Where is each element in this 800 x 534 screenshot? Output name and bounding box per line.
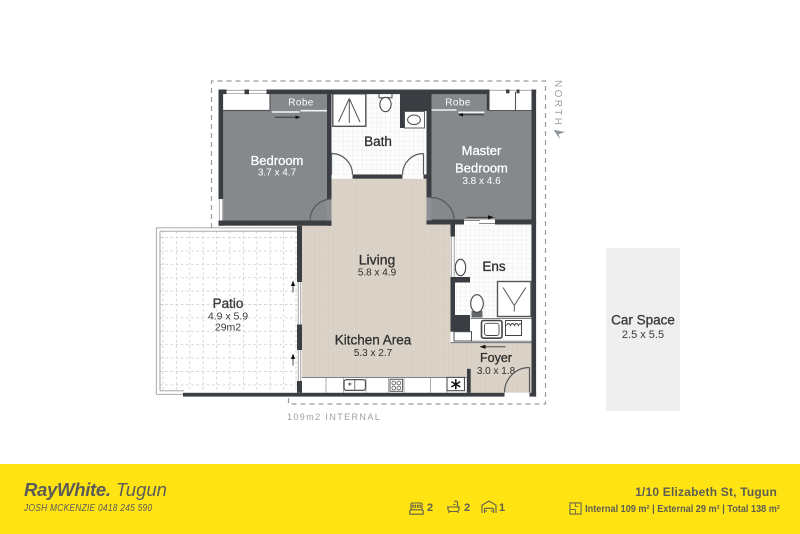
svg-text:29m2: 29m2 <box>215 322 241 334</box>
svg-text:NORTH: NORTH <box>552 80 563 127</box>
svg-text:5.8 x 4.9: 5.8 x 4.9 <box>358 268 397 279</box>
svg-text:Foyer: Foyer <box>480 351 512 365</box>
svg-text:2.5 x 5.5: 2.5 x 5.5 <box>622 329 664 341</box>
svg-text:3.7 x 4.7: 3.7 x 4.7 <box>258 168 297 179</box>
svg-text:Car Space: Car Space <box>611 313 675 328</box>
svg-text:Kitchen Area: Kitchen Area <box>335 333 412 348</box>
svg-text:Ens: Ens <box>482 259 506 274</box>
svg-text:Master: Master <box>462 143 502 158</box>
svg-text:Bedroom: Bedroom <box>251 153 304 168</box>
svg-text:Bedroom: Bedroom <box>455 161 508 176</box>
svg-text:109m2 INTERNAL: 109m2 INTERNAL <box>287 412 381 422</box>
svg-text:Robe: Robe <box>288 98 314 109</box>
svg-text:Robe: Robe <box>445 98 471 109</box>
svg-text:5.3 x 2.7: 5.3 x 2.7 <box>354 348 393 359</box>
svg-text:Patio: Patio <box>213 296 244 311</box>
svg-text:Living: Living <box>359 252 396 268</box>
svg-text:3.0 x 1.8: 3.0 x 1.8 <box>477 366 516 377</box>
svg-text:3.8 x 4.6: 3.8 x 4.6 <box>462 176 501 187</box>
svg-text:Bath: Bath <box>364 134 392 149</box>
